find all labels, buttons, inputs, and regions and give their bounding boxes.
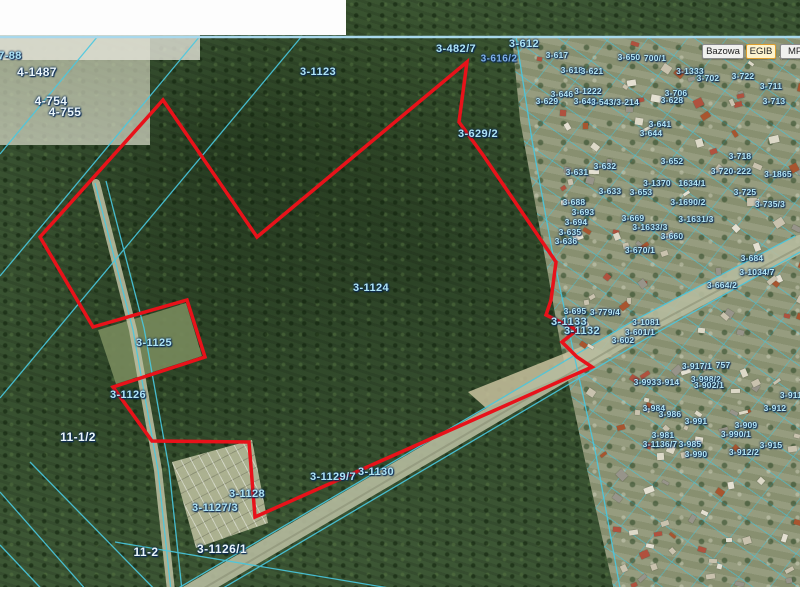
building [736, 329, 744, 335]
building [796, 296, 800, 307]
building [731, 389, 740, 394]
building [625, 107, 632, 112]
building [634, 409, 639, 415]
building [717, 564, 723, 570]
building [561, 185, 568, 192]
building [681, 451, 689, 459]
building [769, 135, 780, 144]
building [661, 250, 669, 257]
building [731, 223, 740, 232]
building [718, 427, 727, 433]
building [747, 61, 753, 67]
building [740, 368, 749, 378]
building [701, 364, 710, 372]
layer-button-bazowa[interactable]: Bazowa [702, 44, 744, 59]
map-viewport: 7-884-14874-7544-7553-11233-11243-11253-… [0, 0, 800, 600]
building [661, 63, 673, 75]
building [643, 486, 654, 495]
building [757, 477, 766, 486]
building [612, 493, 622, 503]
building [662, 425, 670, 433]
building [716, 268, 722, 276]
building [639, 549, 650, 559]
building [773, 377, 781, 384]
building [588, 66, 593, 70]
building [747, 198, 757, 206]
building [695, 138, 704, 147]
building [650, 563, 658, 571]
building [781, 534, 788, 543]
building [588, 170, 598, 174]
building [669, 548, 677, 556]
building [586, 176, 596, 185]
building [644, 407, 650, 413]
building [583, 123, 587, 129]
building [698, 328, 706, 333]
building [706, 574, 716, 580]
building [727, 482, 734, 490]
building [583, 227, 592, 234]
building [613, 232, 621, 241]
building [629, 530, 639, 536]
building [697, 546, 706, 553]
building [563, 167, 571, 174]
building [742, 536, 752, 545]
building [617, 424, 626, 431]
building [607, 159, 612, 165]
building [635, 117, 644, 125]
building [585, 321, 591, 328]
building [695, 411, 703, 418]
building [640, 371, 650, 380]
building [584, 300, 590, 306]
building [694, 436, 703, 443]
building [791, 224, 800, 232]
building [561, 200, 569, 205]
building [681, 369, 691, 376]
blank-map-area [0, 0, 346, 35]
building [687, 76, 695, 82]
building [568, 178, 575, 185]
building [794, 519, 800, 526]
building [662, 480, 670, 486]
building [572, 233, 583, 242]
building [732, 130, 740, 139]
building [753, 243, 762, 253]
building [726, 538, 732, 542]
building [650, 94, 661, 103]
building [665, 444, 675, 454]
building [674, 67, 686, 79]
building [616, 469, 628, 481]
building [700, 111, 710, 121]
building [588, 294, 595, 300]
building [657, 453, 665, 460]
building [585, 388, 595, 398]
building [620, 564, 628, 573]
building [669, 532, 677, 539]
building [660, 520, 669, 528]
building [629, 374, 640, 384]
building [785, 566, 795, 574]
layer-button-mpz[interactable]: MPZ [780, 44, 800, 59]
building [602, 273, 611, 282]
building [794, 434, 800, 439]
building [701, 510, 709, 517]
building [689, 514, 697, 523]
building [733, 444, 741, 452]
building [709, 149, 717, 155]
building [734, 581, 744, 587]
building [654, 532, 662, 537]
building [682, 190, 689, 196]
building [661, 235, 671, 240]
building [599, 451, 607, 458]
building [564, 122, 572, 131]
building [590, 142, 600, 152]
building [715, 488, 725, 498]
building [784, 314, 791, 319]
building [641, 126, 651, 133]
building [772, 217, 784, 229]
building [684, 425, 690, 430]
building [643, 397, 649, 402]
building [636, 97, 644, 102]
blank-map-area [0, 587, 800, 600]
building [587, 343, 594, 349]
building [788, 445, 798, 452]
building [646, 442, 652, 449]
building [638, 573, 648, 582]
building [580, 341, 588, 349]
building [693, 97, 704, 108]
building [646, 543, 655, 548]
building [560, 110, 567, 117]
aerial-map-canvas[interactable]: 7-884-14874-7544-7553-11233-11243-11253-… [0, 0, 800, 600]
building [630, 41, 639, 47]
layer-button-egib[interactable]: EGIB [746, 44, 776, 59]
building [623, 243, 630, 250]
building [752, 163, 762, 171]
building [627, 80, 637, 87]
building [786, 577, 793, 583]
building [612, 527, 621, 533]
building [709, 558, 717, 562]
building [536, 57, 541, 62]
building [714, 164, 723, 173]
building [730, 409, 739, 416]
